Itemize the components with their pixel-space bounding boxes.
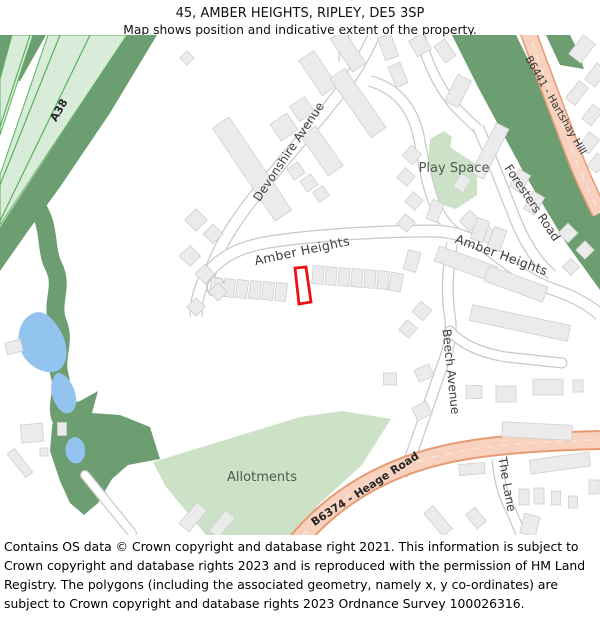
building [459,462,486,475]
building [403,250,421,273]
building [389,272,404,292]
building [300,174,318,192]
building [185,209,208,232]
building [351,269,364,288]
building [466,386,482,399]
building [397,168,415,186]
a38-road [0,35,127,225]
page-title: 45, AMBER HEIGHTS, RIPLEY, DE5 3SP [0,6,600,21]
building [312,266,325,285]
building [179,245,200,266]
building [519,489,529,505]
copyright-notice: Contains OS data © Crown copyright and d… [0,538,600,613]
building [405,192,423,210]
building [261,281,274,300]
building [466,507,487,529]
building [533,379,563,395]
building [248,280,261,299]
building [399,320,417,338]
building [313,186,330,203]
building [520,513,541,535]
building [377,35,398,61]
building [412,301,432,321]
building [235,279,248,298]
building [424,506,452,535]
building [40,448,48,456]
building [7,448,33,477]
building [563,259,580,276]
building [589,480,599,494]
building [552,491,561,505]
building [20,423,43,443]
building [325,267,338,286]
building [534,488,544,504]
building [274,282,287,301]
header: 45, AMBER HEIGHTS, RIPLEY, DE5 3SP Map s… [0,0,600,37]
building [414,364,434,383]
building [569,496,578,508]
building [496,386,516,402]
building [299,51,337,96]
map: A38 B6441 - Hartshay Hill Devonshire Ave… [0,35,600,535]
building [582,104,600,126]
building [338,268,351,287]
map-canvas: A38 B6441 - Hartshay Hill Devonshire Ave… [0,35,600,535]
building [364,270,377,289]
building [180,51,194,65]
label-play-space: Play Space [419,161,490,176]
building [434,39,456,63]
building [565,81,588,106]
building [469,305,570,341]
building [377,271,390,290]
building [502,422,573,441]
building [5,339,24,355]
building [384,373,397,385]
building [529,452,590,474]
building [58,423,67,436]
building [585,63,600,87]
property-outline [295,267,311,304]
label-allotments: Allotments [227,470,297,485]
building [573,380,583,392]
building [287,162,305,180]
